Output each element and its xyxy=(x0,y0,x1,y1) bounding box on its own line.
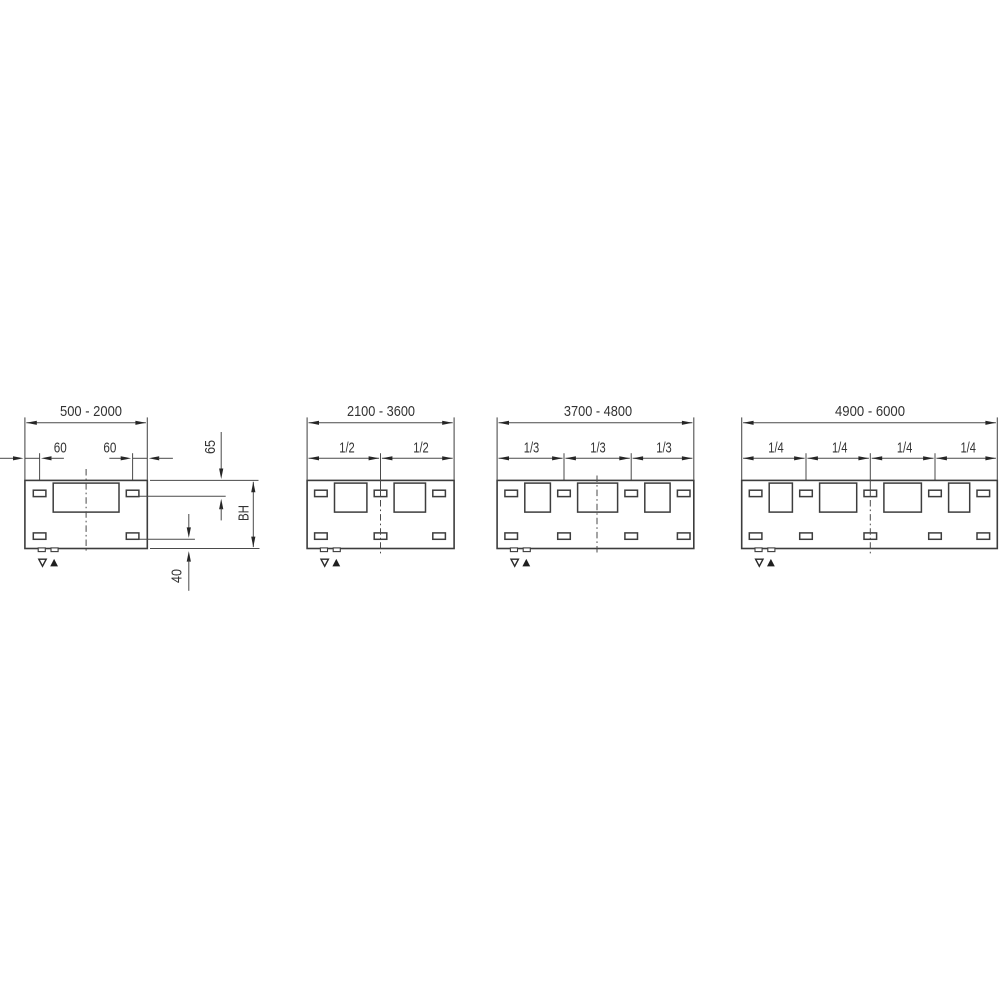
svg-text:1/4: 1/4 xyxy=(960,439,976,456)
svg-text:1/3: 1/3 xyxy=(590,439,606,456)
svg-text:60: 60 xyxy=(54,439,67,456)
svg-text:1/2: 1/2 xyxy=(339,439,355,456)
svg-text:1/4: 1/4 xyxy=(832,439,848,456)
svg-text:40: 40 xyxy=(169,569,186,583)
svg-text:3700 - 4800: 3700 - 4800 xyxy=(564,403,632,420)
svg-text:BH: BH xyxy=(236,505,253,521)
svg-text:1/3: 1/3 xyxy=(524,439,540,456)
svg-text:60: 60 xyxy=(103,439,116,456)
svg-text:1/3: 1/3 xyxy=(656,439,672,456)
svg-text:1/4: 1/4 xyxy=(897,439,913,456)
svg-text:2100 - 3600: 2100 - 3600 xyxy=(347,403,415,420)
svg-text:65: 65 xyxy=(202,440,219,454)
svg-text:1/2: 1/2 xyxy=(413,439,429,456)
svg-text:500 - 2000: 500 - 2000 xyxy=(60,403,122,420)
svg-text:1/4: 1/4 xyxy=(768,439,784,456)
svg-text:4900 - 6000: 4900 - 6000 xyxy=(835,403,905,420)
